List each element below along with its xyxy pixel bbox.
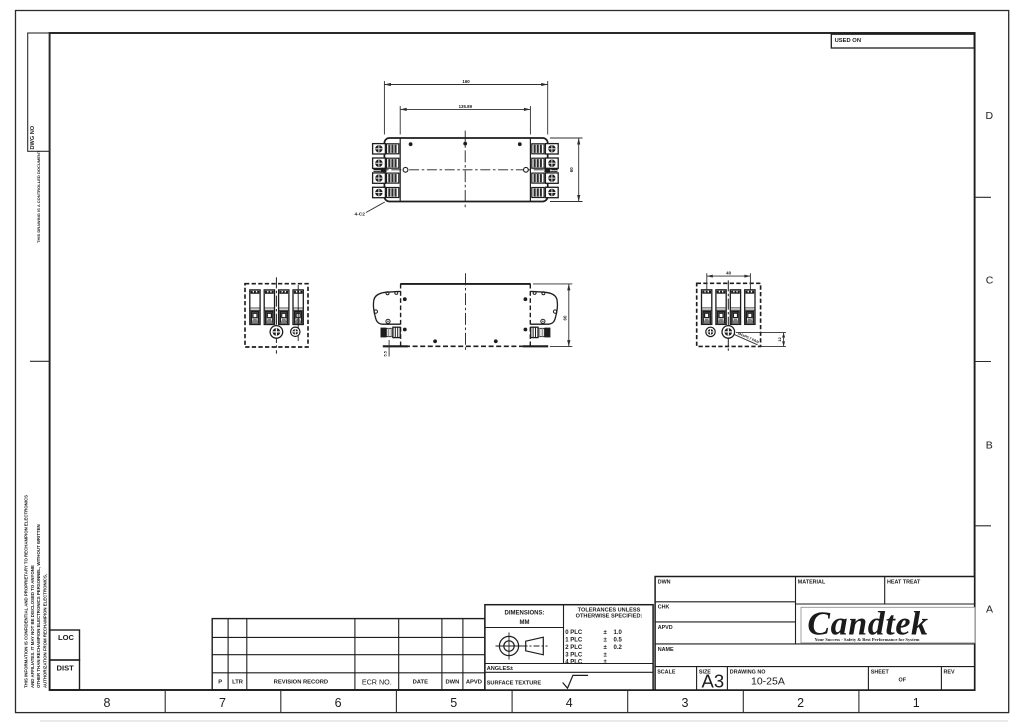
svg-text:A3: A3 (702, 671, 725, 692)
svg-text:THIS INFORMATION IS CONFIDENTI: THIS INFORMATION IS CONFIDENTIAL AND PRO… (24, 495, 29, 688)
svg-text:USED ON: USED ON (835, 38, 861, 44)
svg-text:6: 6 (335, 696, 342, 710)
svg-text:DWN: DWN (658, 579, 671, 585)
svg-text:160: 160 (462, 79, 470, 84)
svg-text:ECR NO.: ECR NO. (362, 677, 392, 686)
svg-text:1: 1 (913, 696, 920, 710)
svg-text:D: D (986, 110, 994, 122)
svg-text:5: 5 (450, 696, 457, 710)
svg-text:7: 7 (219, 696, 226, 710)
svg-text:ANGLES±: ANGLES± (487, 666, 513, 672)
svg-text:HEAT TREAT: HEAT TREAT (887, 579, 921, 585)
svg-text:AUTHORIZATION FROM RECHAMPION: AUTHORIZATION FROM RECHAMPION ELECTRONIC… (42, 574, 47, 688)
svg-text:C: C (986, 275, 994, 287)
svg-text:SCALE: SCALE (657, 670, 676, 676)
svg-text:OTHER THAN RECHAMPION ELECTRON: OTHER THAN RECHAMPION ELECTRONICS PERSON… (36, 524, 41, 688)
svg-text:REV: REV (944, 670, 955, 676)
svg-text:CHK: CHK (658, 605, 670, 611)
svg-text:B: B (986, 440, 993, 452)
svg-text:MM: MM (520, 620, 530, 626)
svg-text:2 PLC: 2 PLC (565, 645, 583, 651)
svg-text:4-C2: 4-C2 (355, 212, 366, 218)
svg-text:LTR: LTR (232, 679, 244, 685)
svg-text:3 PLC: 3 PLC (565, 652, 583, 658)
svg-text:10-25A: 10-25A (751, 676, 785, 688)
svg-text:REVISION RECORD: REVISION RECORD (274, 679, 328, 685)
svg-text:THIS DRAWING IS A CONTROLLED D: THIS DRAWING IS A CONTROLLED DOCUMENT (36, 150, 41, 243)
svg-text:OTHERWISE SPECIFIED:: OTHERWISE SPECIFIED: (576, 614, 643, 620)
svg-text:Your Success · Safety & Best P: Your Success · Safety & Best Performance… (815, 637, 920, 642)
svg-text:5.5: 5.5 (383, 351, 387, 356)
svg-text:135.89: 135.89 (459, 104, 473, 109)
svg-text:P: P (218, 679, 222, 685)
svg-text:4: 4 (566, 696, 573, 710)
svg-text:0.5: 0.5 (614, 638, 623, 644)
svg-text:DWN: DWN (445, 679, 459, 685)
svg-text:APVD: APVD (658, 625, 673, 631)
svg-text:3: 3 (682, 696, 689, 710)
svg-text:8: 8 (104, 696, 111, 710)
svg-text:4 PLC: 4 PLC (565, 659, 583, 665)
svg-text:NAME: NAME (658, 647, 674, 653)
svg-text:APVD: APVD (466, 679, 482, 685)
svg-text:DIMENSIONS:: DIMENSIONS: (504, 611, 544, 617)
svg-text:40: 40 (726, 271, 731, 276)
svg-text:1 PLC: 1 PLC (565, 638, 583, 644)
svg-text:60: 60 (563, 315, 568, 320)
svg-text:AND AFFILIATES. IT MAY NOT BE: AND AFFILIATES. IT MAY NOT BE DISCLOSED … (30, 565, 35, 688)
svg-text:60: 60 (569, 167, 574, 172)
svg-text:A: A (986, 604, 993, 616)
svg-text:SURFACE TEXTURE: SURFACE TEXTURE (487, 681, 542, 687)
svg-text:0 PLC: 0 PLC (565, 630, 583, 636)
svg-text:DIST: DIST (57, 664, 75, 673)
svg-text:2: 2 (797, 696, 804, 710)
svg-text:1.0: 1.0 (614, 630, 623, 636)
svg-text:12: 12 (777, 337, 782, 342)
svg-text:MATERIAL: MATERIAL (798, 579, 826, 585)
svg-text:SHEET: SHEET (871, 670, 890, 676)
svg-text:DATE: DATE (413, 679, 428, 685)
svg-text:0.2: 0.2 (614, 645, 623, 651)
svg-text:LOC: LOC (58, 633, 75, 642)
svg-text:DWG NO: DWG NO (30, 125, 36, 149)
svg-text:OF: OF (899, 677, 907, 683)
